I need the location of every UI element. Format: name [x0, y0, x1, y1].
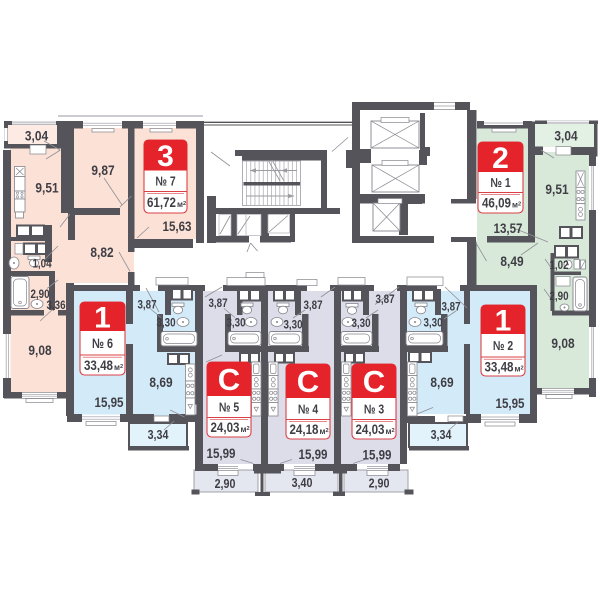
svg-text:9,51: 9,51 — [545, 181, 568, 197]
svg-text:9,51: 9,51 — [35, 180, 58, 196]
svg-text:33,48: 33,48 — [84, 358, 113, 373]
svg-text:3,87: 3,87 — [375, 294, 394, 306]
svg-text:2: 2 — [492, 142, 509, 175]
svg-text:№ 7: № 7 — [155, 174, 175, 189]
svg-text:15,99: 15,99 — [207, 445, 236, 461]
svg-text:№ 3: № 3 — [364, 401, 384, 416]
svg-text:3,87: 3,87 — [208, 298, 227, 310]
svg-text:2,90: 2,90 — [369, 477, 390, 491]
svg-text:№ 4: № 4 — [298, 401, 319, 416]
svg-text:24,03: 24,03 — [210, 420, 239, 435]
svg-text:61,72: 61,72 — [147, 195, 176, 210]
svg-text:15,99: 15,99 — [299, 446, 328, 462]
svg-text:8,82: 8,82 — [90, 244, 113, 260]
svg-text:24,18: 24,18 — [289, 422, 318, 437]
svg-text:№ 5: № 5 — [219, 399, 239, 414]
svg-text:24,03: 24,03 — [355, 422, 384, 437]
svg-text:15,95: 15,95 — [496, 395, 525, 411]
svg-text:1: 1 — [495, 304, 512, 337]
svg-text:3,87: 3,87 — [303, 300, 322, 312]
svg-text:15,99: 15,99 — [363, 447, 392, 463]
svg-text:9,08: 9,08 — [551, 335, 574, 351]
svg-text:№ 6: № 6 — [92, 336, 113, 351]
svg-text:3,36: 3,36 — [46, 300, 65, 312]
svg-text:C: C — [218, 362, 240, 397]
svg-text:15,63: 15,63 — [163, 218, 192, 234]
svg-text:1,04: 1,04 — [32, 259, 52, 271]
svg-text:3,04: 3,04 — [25, 128, 48, 144]
svg-text:9,08: 9,08 — [28, 342, 51, 358]
svg-text:3,30: 3,30 — [351, 318, 370, 330]
svg-text:3,87: 3,87 — [137, 300, 156, 312]
svg-text:№ 1: № 1 — [490, 175, 510, 190]
svg-text:3,30: 3,30 — [423, 318, 442, 330]
svg-text:2,90: 2,90 — [215, 477, 236, 491]
svg-text:3,34: 3,34 — [431, 428, 452, 442]
svg-text:46,09: 46,09 — [482, 196, 511, 211]
svg-text:№ 2: № 2 — [493, 338, 513, 353]
svg-text:9,87: 9,87 — [91, 162, 114, 178]
svg-text:3,40: 3,40 — [292, 476, 313, 490]
svg-text:2,90: 2,90 — [549, 291, 568, 303]
svg-text:3,30: 3,30 — [226, 318, 245, 330]
svg-text:3: 3 — [157, 140, 174, 173]
svg-text:3,34: 3,34 — [148, 428, 169, 442]
svg-text:C: C — [297, 364, 319, 399]
svg-text:3,04: 3,04 — [554, 128, 577, 144]
svg-text:15,95: 15,95 — [95, 394, 124, 410]
svg-text:1: 1 — [94, 301, 111, 334]
svg-text:8,69: 8,69 — [149, 374, 172, 390]
svg-text:1,02: 1,02 — [549, 260, 568, 272]
svg-text:3,30: 3,30 — [156, 318, 175, 330]
svg-text:C: C — [363, 364, 385, 399]
svg-text:33,48: 33,48 — [484, 359, 513, 374]
svg-text:3,87: 3,87 — [441, 302, 460, 314]
svg-text:8,69: 8,69 — [430, 374, 453, 390]
svg-text:3,30: 3,30 — [283, 320, 302, 332]
svg-text:13,57: 13,57 — [494, 220, 523, 236]
svg-text:8,49: 8,49 — [500, 253, 523, 269]
